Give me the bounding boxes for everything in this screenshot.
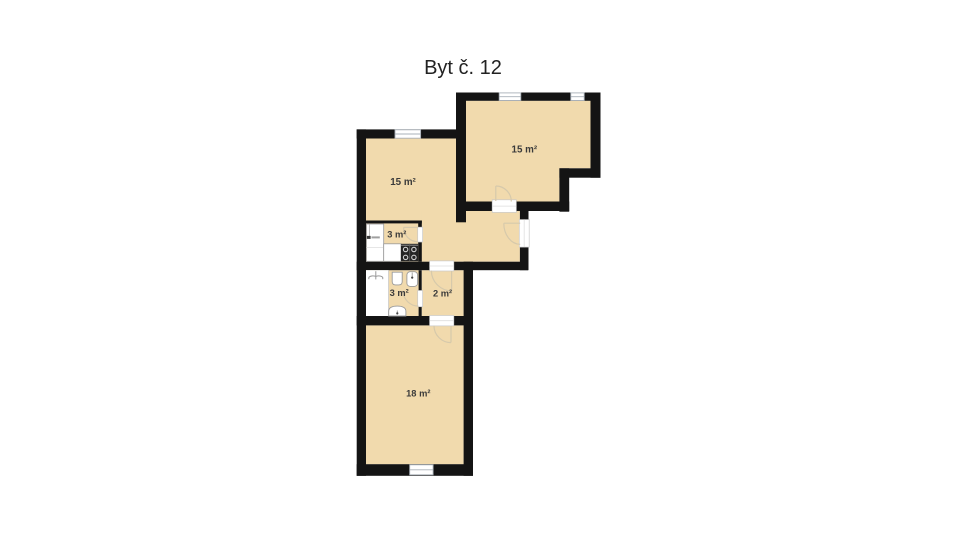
svg-text:15 m²: 15 m² [512, 144, 538, 155]
svg-text:3 m²: 3 m² [387, 229, 406, 239]
svg-text:15 m²: 15 m² [390, 177, 416, 188]
svg-text:2 m²: 2 m² [433, 288, 452, 298]
svg-text:Byt č. 12: Byt č. 12 [424, 57, 502, 79]
svg-text:3 m²: 3 m² [390, 288, 409, 298]
svg-text:18 m²: 18 m² [406, 389, 430, 399]
